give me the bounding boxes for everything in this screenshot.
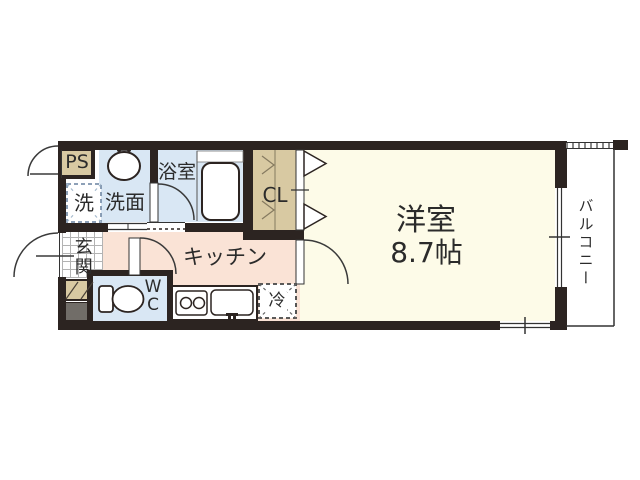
room-door-panel	[296, 240, 304, 284]
toilet-label: W C	[144, 278, 162, 314]
bathroom-door-panel	[150, 183, 158, 222]
bath-counter	[197, 151, 243, 162]
wc-door-panel	[129, 238, 140, 275]
bathtub-icon	[202, 163, 239, 220]
entrance-label: 玄関	[72, 236, 92, 278]
kitchen-sink-icon	[211, 290, 253, 315]
entrance-door-arc	[14, 233, 58, 277]
room-door-arc	[304, 240, 348, 284]
closet-label: CL	[258, 184, 292, 206]
shoe-cabinet-mark	[81, 282, 93, 299]
western-room-size: 8.7帖	[384, 238, 469, 269]
bathroom-label: 浴室	[157, 162, 197, 183]
closet-fold-door-lower	[304, 204, 326, 229]
ps-door-arc	[28, 146, 58, 176]
bath-threshold	[147, 222, 185, 232]
wc-door-arc	[140, 238, 176, 274]
toilet-bowl-icon	[113, 286, 144, 312]
refrigerator-label: 冷	[267, 292, 287, 311]
closet-fold-door-upper	[304, 151, 326, 176]
floorplan-graphics	[0, 0, 640, 480]
closet-mark-upper	[262, 156, 274, 174]
balcony-label: バルコニー	[577, 190, 594, 295]
washbasin-icon	[108, 152, 140, 180]
kitchen-label: キッチン	[180, 246, 270, 269]
laundry-label: 洗	[72, 192, 96, 214]
shoe-cabinet-mark	[66, 282, 78, 299]
western-room-label: 洋室	[390, 204, 462, 237]
faucet-icon	[226, 313, 238, 316]
pipe-space-label: PS	[61, 152, 93, 173]
bathroom-door-arc	[158, 184, 194, 220]
toilet-tank-icon	[99, 286, 113, 312]
floorplan: PS 洗 洗面 浴室 CL 玄関 W C キッチン 冷 洋室 8.7帖 バルコニ…	[0, 0, 640, 480]
washroom-label: 洗面	[103, 191, 147, 213]
